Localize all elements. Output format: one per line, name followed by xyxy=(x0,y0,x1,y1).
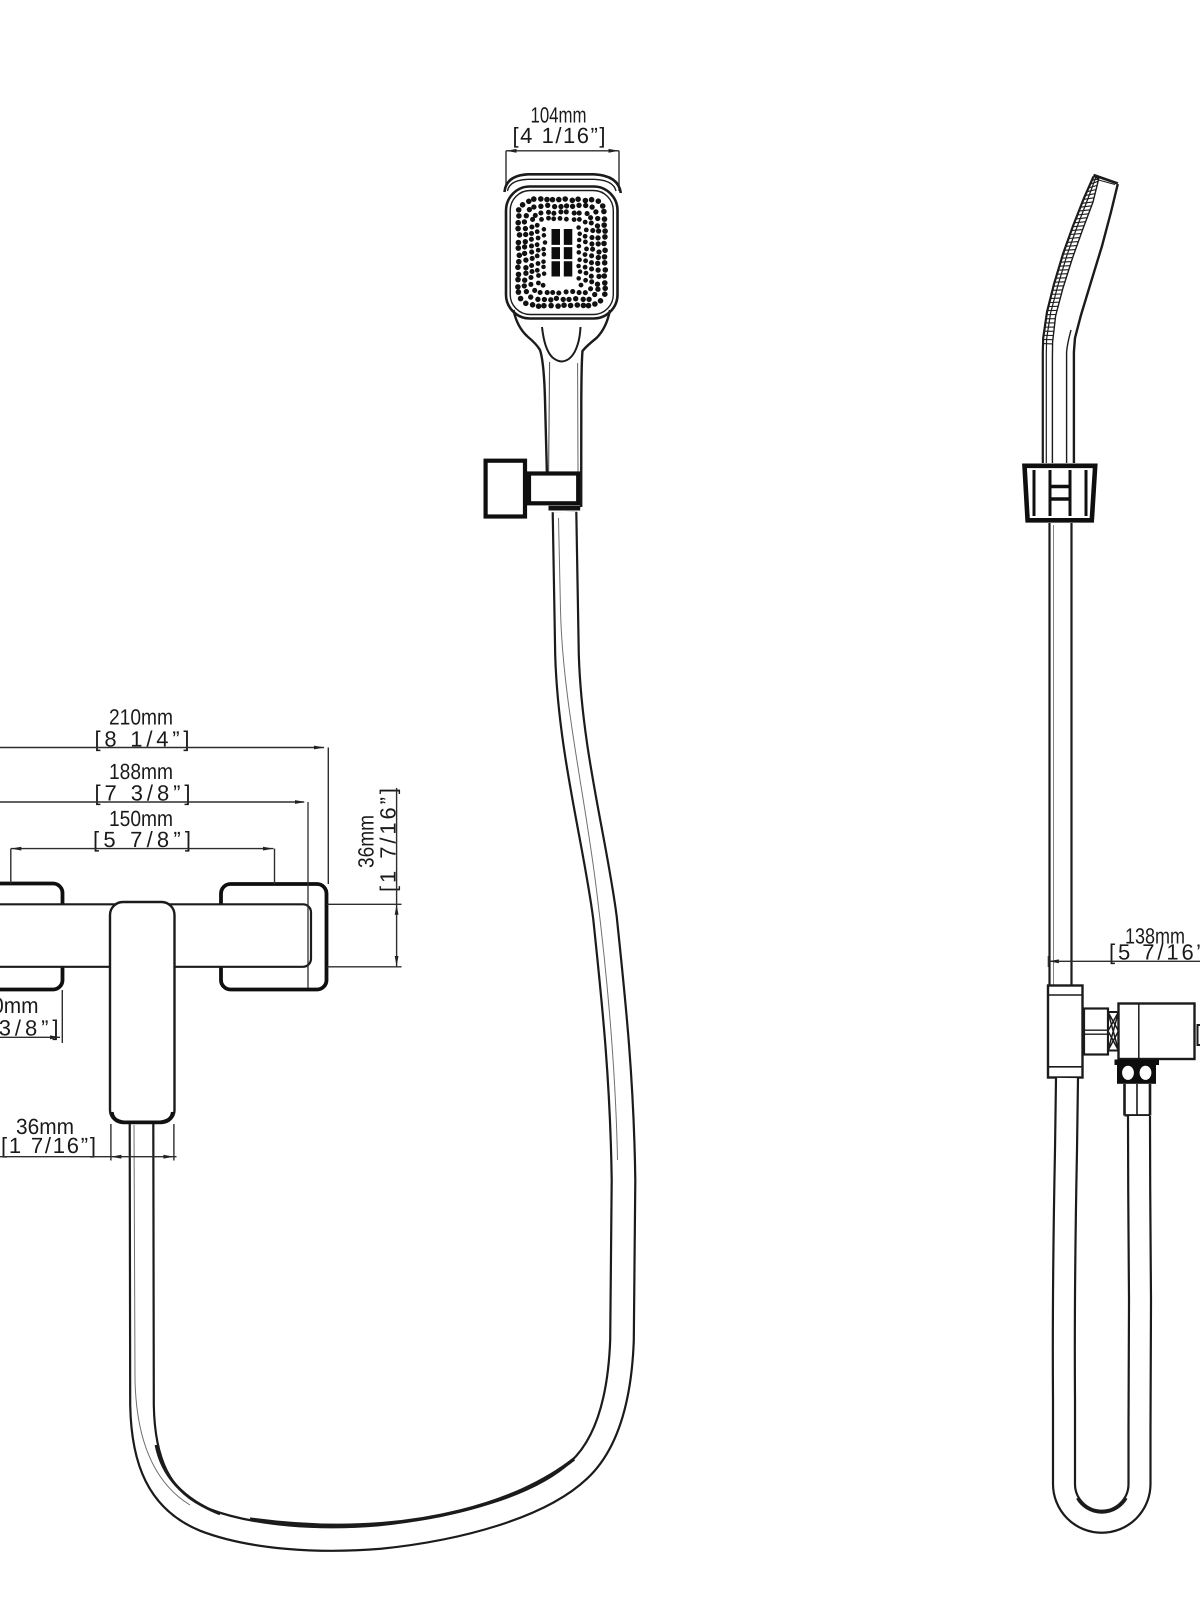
svg-text:[4 1/16”]: [4 1/16”] xyxy=(512,123,605,148)
svg-text:[1 7/16”]: [1 7/16”] xyxy=(1,1133,96,1158)
svg-text:60mm: 60mm xyxy=(0,993,39,1018)
